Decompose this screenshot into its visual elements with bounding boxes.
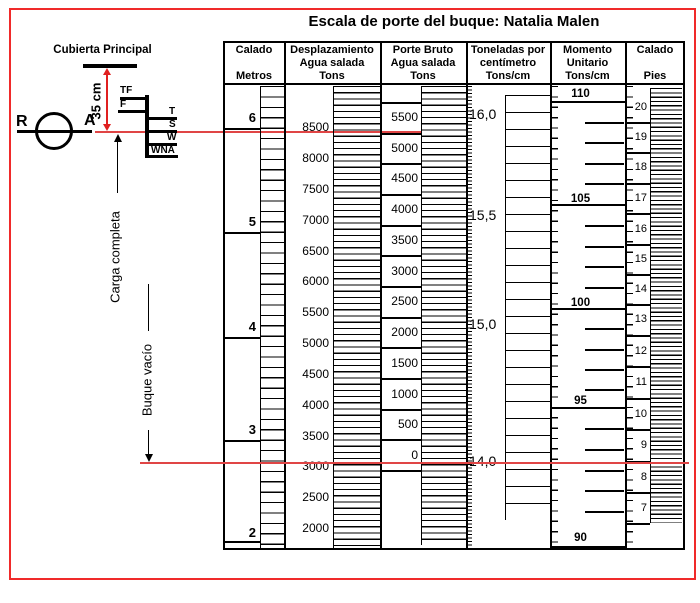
scale-label: 15 <box>625 252 647 266</box>
scale-label: 0 <box>380 448 418 462</box>
scale-label: 3000 <box>380 264 418 278</box>
scale-label: 100 <box>550 296 611 310</box>
scale-label: 4 <box>223 320 256 334</box>
scale-label: 4500 <box>380 171 418 185</box>
wna-label: WNA <box>151 146 175 156</box>
scale-label: 2000 <box>380 325 418 339</box>
scale-label: 8 <box>625 470 647 484</box>
f-label: F <box>120 100 126 110</box>
deck-line <box>83 64 137 68</box>
scale-label: 1000 <box>380 387 418 401</box>
scale-label: 6000 <box>284 274 329 288</box>
arrow-up-icon <box>103 68 111 75</box>
scale-label: 6 <box>223 111 256 125</box>
s-label: S <box>169 120 176 130</box>
scale-pies-labels: 2019181716151413121110987 <box>625 0 647 603</box>
full-load-label: Carga completa <box>108 211 123 303</box>
scale-label: 95 <box>550 394 611 408</box>
tpc-tick-ladder <box>505 95 550 520</box>
scale-label: 8500 <box>284 120 329 134</box>
scale-label: 17 <box>625 191 647 205</box>
metros-tick-ladder <box>260 86 285 549</box>
scale-label: 19 <box>625 130 647 144</box>
full-load-leader-line <box>117 141 119 193</box>
arrow-down-icon <box>103 124 111 131</box>
scale-label: 11 <box>625 375 647 389</box>
scale-label: 14 <box>625 282 647 296</box>
scale-label: 110 <box>550 87 611 101</box>
scale-label: 13 <box>625 312 647 326</box>
porte-bruto-tick-ladder <box>421 86 466 545</box>
arrow-down-icon <box>145 454 153 462</box>
scale-label: 4500 <box>284 367 329 381</box>
scale-label: 5500 <box>284 305 329 319</box>
pies-tick-ladder <box>650 88 682 523</box>
tf-label: TF <box>120 86 132 96</box>
scale-label: 5000 <box>380 141 418 155</box>
scale-label: 2500 <box>284 490 329 504</box>
scale-label: 8000 <box>284 151 329 165</box>
t-label: T <box>169 107 175 117</box>
scale-label: 20 <box>625 100 647 114</box>
letter-a: A <box>84 113 96 129</box>
scale-label: 5 <box>223 215 256 229</box>
light-ship-reference-line <box>140 462 689 464</box>
w-label: W <box>167 133 176 143</box>
scale-label: 15,5 <box>469 208 507 222</box>
scale-label: 7000 <box>284 213 329 227</box>
scale-label: 90 <box>550 531 611 545</box>
loadline-bar <box>145 95 150 158</box>
scale-label: 5000 <box>284 336 329 350</box>
scale-label: 1500 <box>380 356 418 370</box>
scale-porte-bruto-labels: 5500500045004000350030002500200015001000… <box>380 0 418 603</box>
scale-label: 16,0 <box>469 107 507 121</box>
scale-label: 18 <box>625 160 647 174</box>
scale-label: 4000 <box>284 398 329 412</box>
scale-label: 2000 <box>284 521 329 535</box>
scale-momento-labels: 1101051009590 <box>550 0 611 603</box>
plimsoll-line <box>17 130 92 134</box>
scale-desplazamiento-labels: 8500800075007000650060005500500045004000… <box>284 0 329 603</box>
scale-label: 3 <box>223 423 256 437</box>
desplazamiento-tick-ladder <box>333 86 381 549</box>
scale-label: 7500 <box>284 182 329 196</box>
scale-label: 14,0 <box>469 454 507 468</box>
scale-label: 5500 <box>380 110 418 124</box>
scale-label: 500 <box>380 417 418 431</box>
scale-label: 4000 <box>380 202 418 216</box>
scale-label: 2500 <box>380 294 418 308</box>
scale-label: 3500 <box>284 429 329 443</box>
f-line <box>118 110 146 113</box>
letter-r: R <box>16 114 28 130</box>
scale-label: 105 <box>550 192 611 206</box>
gap-arrow-line <box>106 74 108 124</box>
scale-label: 9 <box>625 438 647 452</box>
scale-calado-metros-labels: 65432 <box>223 0 256 603</box>
scale-label: 6500 <box>284 244 329 258</box>
scale-label: 15,0 <box>469 317 507 331</box>
scale-label: 16 <box>625 222 647 236</box>
deck-label: Cubierta Principal <box>40 44 165 56</box>
light-ship-leader-line-top <box>148 284 150 331</box>
light-ship-leader-line-bottom <box>148 430 150 455</box>
scale-label: 7 <box>625 501 647 515</box>
scale-label: 3500 <box>380 233 418 247</box>
scale-toneladas-labels: 16,015,515,014,0 <box>469 0 507 603</box>
scale-label: 2 <box>223 526 256 540</box>
scale-label: 10 <box>625 407 647 421</box>
light-ship-label: Buque vacío <box>140 344 155 416</box>
scale-label: 12 <box>625 344 647 358</box>
deadweight-scale-page: Escala de porte del buque: Natalia Malen… <box>0 0 700 603</box>
